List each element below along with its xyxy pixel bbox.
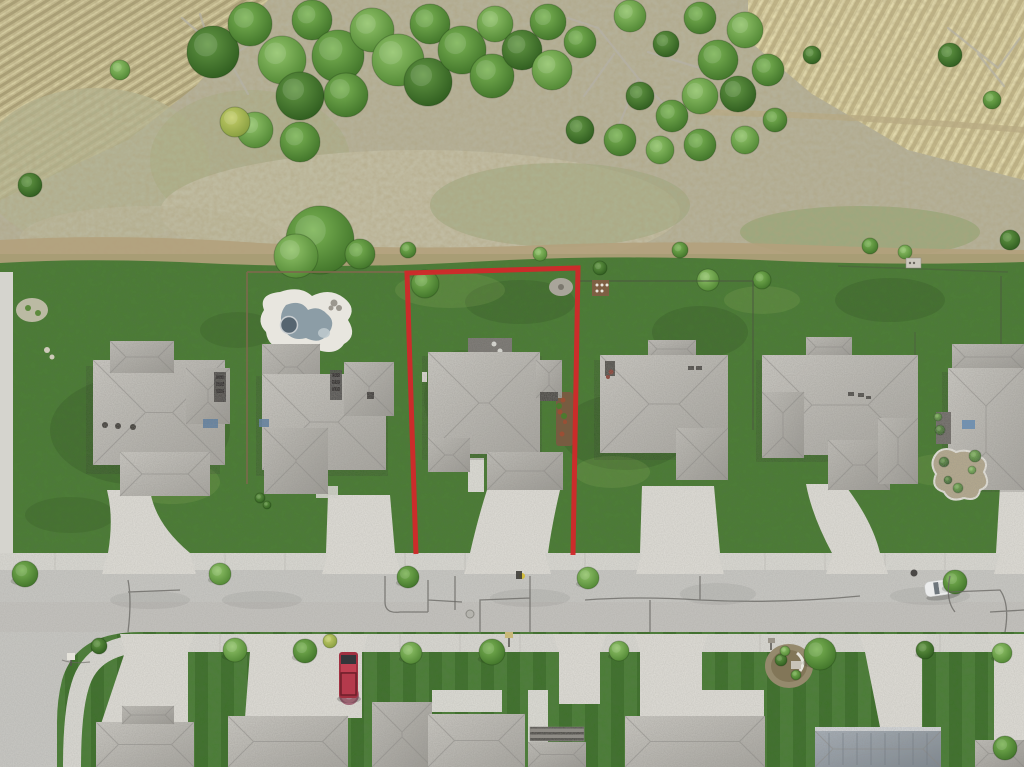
tree [566,116,594,144]
aerial-photo-canvas [0,0,1024,767]
mailbox [768,638,775,643]
tree [934,413,942,421]
photo-detail [50,355,55,360]
red-pickup-truck [337,652,361,703]
driveway [996,486,1024,553]
photo-detail [909,262,911,264]
house-4 [594,340,728,480]
roof [372,702,432,767]
mailbox [505,632,513,638]
tree [752,54,784,86]
tree [684,129,716,161]
tree [263,501,271,509]
tree [672,242,688,258]
ac-unit [492,342,497,347]
tree [791,670,801,680]
photo-detail [560,432,565,437]
photo-detail [332,380,340,384]
garden-box [592,280,609,296]
aerial-photograph [0,0,1024,767]
tree [1000,230,1020,250]
tree [953,483,963,493]
house-1 [86,341,230,496]
tree [682,78,718,114]
roof-wing [120,452,210,496]
tree [324,73,368,117]
front-walk [559,652,600,704]
side-street-sidewalk [0,272,13,558]
roof-wing [676,428,728,480]
tree [564,26,596,58]
photo-detail [35,310,41,316]
tree [898,245,912,259]
hot-tub [281,317,298,334]
roof-vent [858,393,864,397]
photo-detail [609,370,614,375]
photo-detail [222,591,302,609]
driveway-apron [120,634,194,652]
tree [697,269,719,291]
roof-wing [428,714,525,767]
tree [276,72,324,120]
pergola [530,727,584,741]
tree [684,2,716,34]
photo-detail [332,387,340,391]
driveway [640,486,720,553]
landscape-bed [16,298,48,322]
tree [280,122,320,162]
photo-detail [558,410,563,415]
driveway-apron [636,553,724,574]
roof [528,742,586,767]
tree [228,2,272,46]
tree [968,466,976,474]
tree [110,60,130,80]
roof-wing [110,341,174,373]
photo-detail [601,284,604,287]
photo-detail [332,373,340,377]
tree [938,43,962,67]
roof-wing [878,418,918,484]
photo-detail [430,163,690,247]
trash-can [911,570,918,577]
photo-detail [561,413,567,419]
photo-detail [561,398,566,403]
photo-detail [556,403,562,409]
tree [323,634,337,648]
roof-vent [866,396,871,399]
tree [653,31,679,57]
tree [614,0,646,32]
roof-vent [115,423,121,429]
tree [593,261,607,275]
roof-vent [130,424,136,430]
tree [993,736,1017,760]
tree [862,238,878,254]
tree [533,247,547,261]
photo-detail [913,262,915,264]
photo-detail [216,375,224,379]
driveway-apron [464,553,551,574]
roof-wing [264,428,328,494]
photo-detail [44,347,50,353]
photo-detail [329,306,334,311]
photo-detail [110,591,190,609]
truck-windshield [341,655,356,665]
tree [646,136,674,164]
roof-vent [688,366,694,370]
tree [939,457,949,467]
roof-wing [806,337,852,357]
roof [96,722,194,767]
driveway-apron [102,553,196,574]
garage-roof [487,452,563,490]
photo-detail [395,272,505,308]
roof-wing [344,362,394,416]
tree [400,242,416,258]
roof-wing [762,392,804,458]
tree [698,40,738,80]
subject-house [422,338,563,490]
tree [656,100,688,132]
photo-detail [596,284,599,287]
front-walk [468,458,484,492]
truck-bed [341,673,356,695]
tree [626,82,654,110]
photo-detail [216,389,224,393]
scene-root [0,0,1024,767]
tree [763,108,787,132]
roof-vent [848,392,854,396]
tree [530,4,566,40]
tree [532,50,572,90]
tree [983,91,1001,109]
roof-notch [540,392,558,401]
skylight [962,420,975,429]
tree [753,271,771,289]
fire-pit [558,284,564,290]
photo-detail [574,456,650,488]
roof-wing [952,344,1024,370]
tree [780,646,790,656]
trash-can [516,571,522,579]
driveway-apron [322,553,401,574]
photo-detail [606,284,609,287]
tree [604,124,636,156]
driveway-apron [553,634,606,652]
manhole [466,610,474,618]
photo-detail [596,290,599,293]
photo-detail [216,382,224,386]
utility-box [422,372,427,382]
tree [255,493,265,503]
photo-detail [724,286,800,314]
roof-vent [367,392,374,399]
roof-wing [428,438,470,472]
tree [345,239,375,269]
tree [935,425,945,435]
roof [228,716,348,767]
tree [18,173,42,197]
photo-detail [336,305,342,311]
tree [803,46,821,64]
photo-detail [563,420,567,424]
photo-detail [331,300,338,307]
tree [220,107,250,137]
driveway-apron [634,634,708,652]
island-structure [791,661,801,669]
mailbox [67,653,75,660]
tree [731,126,759,154]
tree [720,76,756,112]
tree [727,12,763,48]
photo-detail [606,375,610,379]
tree [969,450,981,462]
photo-detail [25,305,31,311]
skylight [203,419,218,428]
photo-detail [25,497,115,533]
tree [915,641,934,659]
driveway-apron [826,553,888,574]
tree [944,476,952,484]
photo-detail [601,290,604,293]
patio [432,690,502,712]
driveway [326,495,395,553]
roof [625,716,765,767]
pool-steps [318,328,330,338]
truck-cab-roof [341,664,356,672]
skylight [259,419,269,427]
tree [91,638,107,654]
roof-vent [696,366,702,370]
roof-wing [122,706,174,724]
roof-vent [102,422,108,428]
solar-roof [815,731,941,767]
photo-detail [835,278,945,322]
